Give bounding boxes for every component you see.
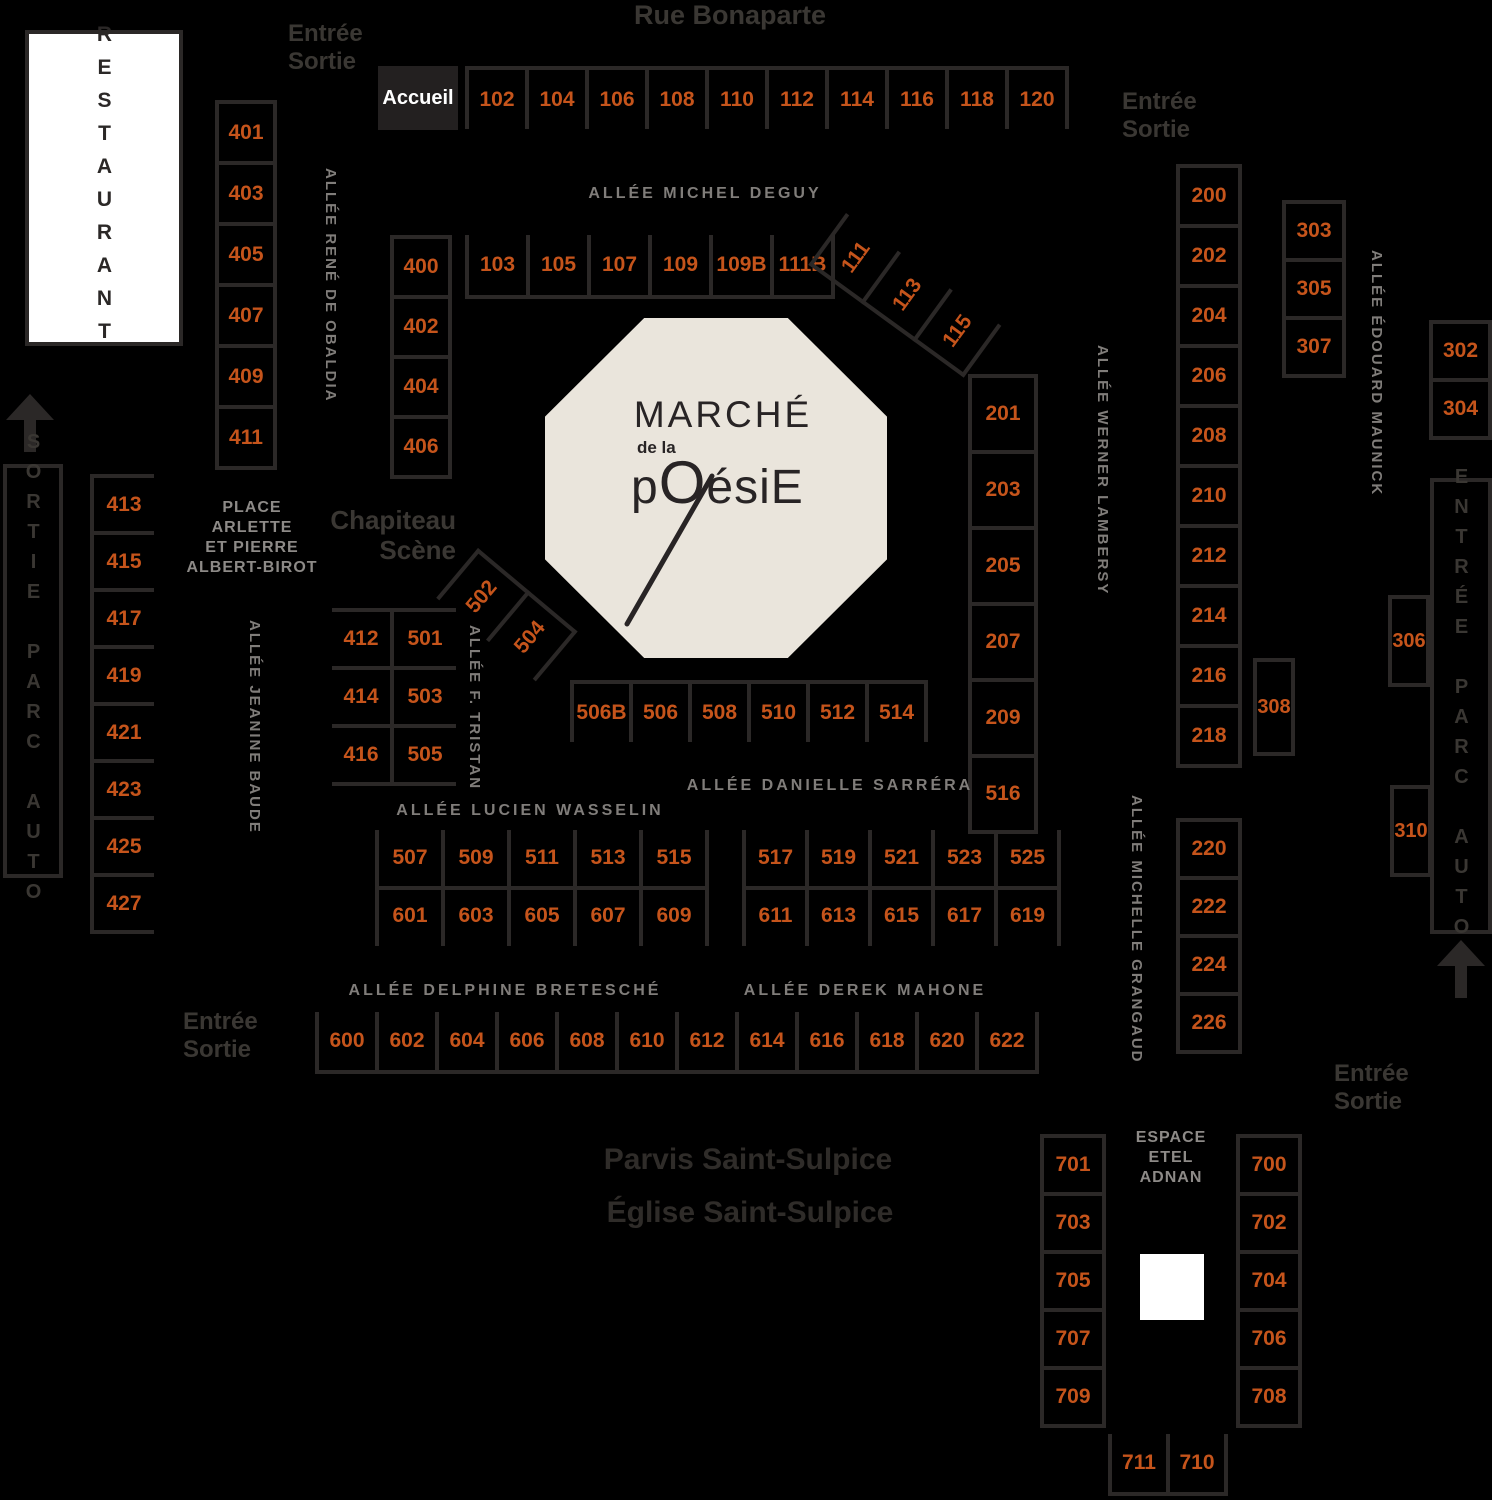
stand-512: 512 <box>806 680 869 742</box>
stand-619: 619 <box>994 886 1061 946</box>
street-rue-bonaparte: Rue Bonaparte <box>555 0 905 31</box>
alley-rene-de-obaldia: ALLÉE RENÉ DE OBALDIA <box>322 168 339 403</box>
alley-edouard-maunick: ALLÉE ÉDOUARD MAUNICK <box>1368 250 1385 496</box>
stand-row-601: 601 603 605 607 609 <box>375 886 709 946</box>
entrance-top-left: Entrée Sortie <box>288 20 363 75</box>
alley-f-tristan: ALLÉE F. TRISTAN <box>466 625 483 790</box>
stand-402: 402 <box>390 295 452 359</box>
stand-701: 701 <box>1040 1134 1106 1196</box>
stand-row-507: 507 509 511 513 515 <box>375 830 709 890</box>
stand-col-400: 400 402 404 406 <box>390 235 452 479</box>
marche-poesie-floor-plan: Rue Bonaparte Entrée Sortie RESTAURANT A… <box>0 0 1492 1500</box>
entrance-bottom-right: Entrée Sortie <box>1334 1060 1409 1115</box>
stand-609: 609 <box>639 886 709 946</box>
stand-row-611: 611 613 615 617 619 <box>742 886 1061 946</box>
stand-702: 702 <box>1236 1192 1302 1254</box>
place-arlette-label: PLACE ARLETTE ET PIERRE ALBERT-BIROT <box>162 498 342 578</box>
stand-606: 606 <box>495 1012 559 1074</box>
stand-104: 104 <box>525 66 589 129</box>
stand-206: 206 <box>1176 344 1242 408</box>
stand-503: 503 <box>394 666 456 728</box>
stand-605: 605 <box>507 886 577 946</box>
stand-114: 114 <box>825 66 889 129</box>
alley-derek-mahone: ALLÉE DEREK MAHONE <box>670 982 1060 1000</box>
restaurant-label: RESTAURANT <box>92 23 116 353</box>
alley-werner-lambersy: ALLÉE WERNER LAMBERSY <box>1094 345 1111 595</box>
stand-622: 622 <box>975 1012 1039 1074</box>
stand-611: 611 <box>742 886 809 946</box>
chapiteau-line-1: Chapiteau <box>330 506 456 536</box>
stand-208: 208 <box>1176 404 1242 468</box>
stand-305: 305 <box>1282 258 1346 320</box>
stand-416: 416 <box>332 724 394 786</box>
espace-etel-adnan-label: ESPACE ETEL ADNAN <box>1106 1128 1236 1188</box>
stand-106: 106 <box>585 66 649 129</box>
stand-523: 523 <box>931 830 998 890</box>
stand-506: 506 <box>629 680 692 742</box>
stand-708: 708 <box>1236 1366 1302 1428</box>
place-line-2: ARLETTE <box>162 518 342 538</box>
stand-620: 620 <box>915 1012 979 1074</box>
espace-line-3: ADNAN <box>1106 1168 1236 1188</box>
sortie-label: Sortie <box>183 1036 258 1064</box>
stand-col-201: 201 203 205 207 209 516 <box>968 374 1038 834</box>
entrance-top-right: Entrée Sortie <box>1122 88 1197 143</box>
stand-618: 618 <box>855 1012 919 1074</box>
stand-417: 417 <box>90 588 154 649</box>
accueil-box: Accueil <box>378 66 458 130</box>
accueil-label: Accueil <box>382 87 453 110</box>
stand-427: 427 <box>90 873 154 934</box>
stand-210: 210 <box>1176 464 1242 528</box>
stand-303: 303 <box>1282 200 1346 262</box>
stand-226: 226 <box>1176 992 1242 1054</box>
stand-501: 501 <box>394 608 456 670</box>
stand-110: 110 <box>705 66 769 129</box>
stand-108: 108 <box>645 66 709 129</box>
stand-201: 201 <box>968 374 1038 454</box>
stand-411: 411 <box>215 405 277 470</box>
stand-205: 205 <box>968 526 1038 606</box>
stand-400: 400 <box>390 235 452 299</box>
stand-209: 209 <box>968 678 1038 758</box>
stand-513: 513 <box>573 830 643 890</box>
stand-707: 707 <box>1040 1308 1106 1370</box>
stand-row-517: 517 519 521 523 525 <box>742 830 1061 890</box>
stand-224: 224 <box>1176 934 1242 996</box>
alley-michelle-grangaud: ALLÉE MICHELLE GRANGAUD <box>1128 795 1145 1064</box>
chapiteau-line-2: Scène <box>330 536 456 566</box>
stand-604: 604 <box>435 1012 499 1074</box>
stand-col-303: 303 305 307 <box>1282 200 1346 378</box>
stand-706: 706 <box>1236 1308 1302 1370</box>
logo-marche: MARCHÉ <box>603 394 843 436</box>
stand-511: 511 <box>507 830 577 890</box>
stand-116: 116 <box>885 66 949 129</box>
stand-105: 105 <box>526 235 591 299</box>
stand-506B: 506B <box>570 680 633 742</box>
stand-419: 419 <box>90 645 154 706</box>
stand-705: 705 <box>1040 1250 1106 1312</box>
stand-220: 220 <box>1176 818 1242 880</box>
stand-401: 401 <box>215 100 277 165</box>
stand-423: 423 <box>90 759 154 820</box>
stand-107: 107 <box>587 235 652 299</box>
stand-120: 120 <box>1005 66 1069 129</box>
stand-row-bonaparte: 102 104 106 108 110 112 114 116 118 120 <box>465 66 1069 129</box>
stand-col-302: 302 304 <box>1429 320 1492 440</box>
stand-709: 709 <box>1040 1366 1106 1428</box>
stand-704: 704 <box>1236 1250 1302 1312</box>
stand-103: 103 <box>465 235 530 299</box>
stand-421: 421 <box>90 702 154 763</box>
stand-610: 610 <box>615 1012 679 1074</box>
stand-row-711: 711 710 <box>1108 1434 1228 1496</box>
entree-label: Entrée <box>183 1008 258 1036</box>
stand-grid-chapiteau: 412 501 414 503 416 505 <box>332 608 456 786</box>
marche-poesie-logo-octagon: MARCHÉ de la pOésiE <box>545 318 887 658</box>
sortie-label: Sortie <box>1334 1088 1409 1116</box>
stand-302: 302 <box>1429 320 1492 382</box>
stand-613: 613 <box>805 886 872 946</box>
entree-parc-auto-label: ENTRÉE PARC AUTO <box>1450 466 1473 946</box>
arrow-up-right-icon <box>1437 940 1485 998</box>
stand-507: 507 <box>375 830 445 890</box>
stand-212: 212 <box>1176 524 1242 588</box>
alley-lucien-wasselin: ALLÉE LUCIEN WASSELIN <box>330 802 730 820</box>
stand-710: 710 <box>1166 1434 1228 1496</box>
stand-425: 425 <box>90 816 154 877</box>
stand-517: 517 <box>742 830 809 890</box>
stand-514: 514 <box>865 680 928 742</box>
stand-118: 118 <box>945 66 1009 129</box>
stand-521: 521 <box>868 830 935 890</box>
espace-line-1: ESPACE <box>1106 1128 1236 1148</box>
stand-207: 207 <box>968 602 1038 682</box>
restaurant-box: RESTAURANT <box>25 30 183 346</box>
stand-col-401: 401 403 405 407 409 411 <box>215 100 277 470</box>
stand-204: 204 <box>1176 284 1242 348</box>
stand-218: 218 <box>1176 704 1242 768</box>
stand-col-701: 701 703 705 707 709 <box>1040 1134 1106 1428</box>
stand-406: 406 <box>390 415 452 479</box>
stand-row-deguy: 103 105 107 109 109B 111B <box>465 235 835 299</box>
stand-601: 601 <box>375 886 445 946</box>
sortie-label: Sortie <box>288 48 363 76</box>
stand-diag-northeast: 111 113 115 <box>808 213 1001 378</box>
parvis-saint-sulpice-label: Parvis Saint-Sulpice <box>548 1143 948 1177</box>
stand-405: 405 <box>215 222 277 287</box>
logo-text: MARCHÉ de la pOésiE <box>603 394 843 517</box>
stand-415: 415 <box>90 531 154 592</box>
stand-307: 307 <box>1282 316 1346 378</box>
alley-danielle-sarrera: ALLÉE DANIELLE SARRÉRA <box>630 777 1030 795</box>
stand-row-506: 506B 506 508 510 512 514 <box>570 680 928 742</box>
entree-label: Entrée <box>1122 88 1197 116</box>
stand-203: 203 <box>968 450 1038 530</box>
alley-michel-deguy: ALLÉE MICHEL DEGUY <box>505 185 905 203</box>
stand-col-220: 220 222 224 226 <box>1176 818 1242 1054</box>
stand-310: 310 <box>1390 785 1432 877</box>
place-line-1: PLACE <box>162 498 342 518</box>
sortie-parc-auto-box: SORTIE PARC AUTO <box>3 464 63 878</box>
stand-col-413: 413 415 417 419 421 423 425 427 <box>90 474 154 934</box>
stand-703: 703 <box>1040 1192 1106 1254</box>
entree-label: Entrée <box>1334 1060 1409 1088</box>
alley-jeanine-baude: ALLÉE JEANINE BAUDE <box>246 620 263 834</box>
stand-413: 413 <box>90 474 154 535</box>
stand-414: 414 <box>332 666 394 728</box>
stand-407: 407 <box>215 283 277 348</box>
stand-505: 505 <box>394 724 456 786</box>
stand-525: 525 <box>994 830 1061 890</box>
stand-612: 612 <box>675 1012 739 1074</box>
stand-603: 603 <box>441 886 511 946</box>
stand-608: 608 <box>555 1012 619 1074</box>
stand-700: 700 <box>1236 1134 1302 1196</box>
entrance-bottom-left: Entrée Sortie <box>183 1008 258 1063</box>
stand-519: 519 <box>805 830 872 890</box>
stand-222: 222 <box>1176 876 1242 938</box>
stand-102: 102 <box>465 66 529 129</box>
logo-poesie: pOésiE <box>631 448 843 517</box>
stand-602: 602 <box>375 1012 439 1074</box>
stand-109: 109 <box>648 235 713 299</box>
stand-509: 509 <box>441 830 511 890</box>
stand-617: 617 <box>931 886 998 946</box>
stand-202: 202 <box>1176 224 1242 288</box>
stand-216: 216 <box>1176 644 1242 708</box>
espace-line-2: ETEL <box>1106 1148 1236 1168</box>
stand-508: 508 <box>688 680 751 742</box>
stand-403: 403 <box>215 161 277 226</box>
stand-col-200: 200 202 204 206 208 210 212 214 216 218 <box>1176 164 1242 768</box>
alley-delphine-bretesche: ALLÉE DELPHINE BRETESCHÉ <box>310 982 700 1000</box>
stand-600: 600 <box>315 1012 379 1074</box>
sortie-label: Sortie <box>1122 116 1197 144</box>
espace-center-square <box>1140 1254 1204 1320</box>
place-line-4: ALBERT-BIROT <box>162 558 342 578</box>
stand-row-600: 600 602 604 606 608 610 612 614 616 618 … <box>315 1012 1039 1074</box>
stand-214: 214 <box>1176 584 1242 648</box>
stand-308: 308 <box>1253 658 1295 756</box>
stand-109B: 109B <box>709 235 774 299</box>
stand-306: 306 <box>1388 595 1430 687</box>
stand-409: 409 <box>215 344 277 409</box>
stand-200: 200 <box>1176 164 1242 228</box>
eglise-saint-sulpice-label: Église Saint-Sulpice <box>535 1196 965 1230</box>
entree-parc-auto-box: ENTRÉE PARC AUTO <box>1430 478 1492 934</box>
chapiteau-scene-label: Chapiteau Scène <box>330 506 456 566</box>
stand-412: 412 <box>332 608 394 670</box>
entree-label: Entrée <box>288 20 363 48</box>
stand-304: 304 <box>1429 378 1492 440</box>
stand-510: 510 <box>747 680 810 742</box>
stand-col-700: 700 702 704 706 708 <box>1236 1134 1302 1428</box>
stand-515: 515 <box>639 830 709 890</box>
stand-615: 615 <box>868 886 935 946</box>
stand-616: 616 <box>795 1012 859 1074</box>
stand-711: 711 <box>1108 1434 1170 1496</box>
place-line-3: ET PIERRE <box>162 538 342 558</box>
stand-607: 607 <box>573 886 643 946</box>
stand-614: 614 <box>735 1012 799 1074</box>
stand-404: 404 <box>390 355 452 419</box>
stand-112: 112 <box>765 66 829 129</box>
sortie-parc-auto-label: SORTIE PARC AUTO <box>22 431 45 911</box>
